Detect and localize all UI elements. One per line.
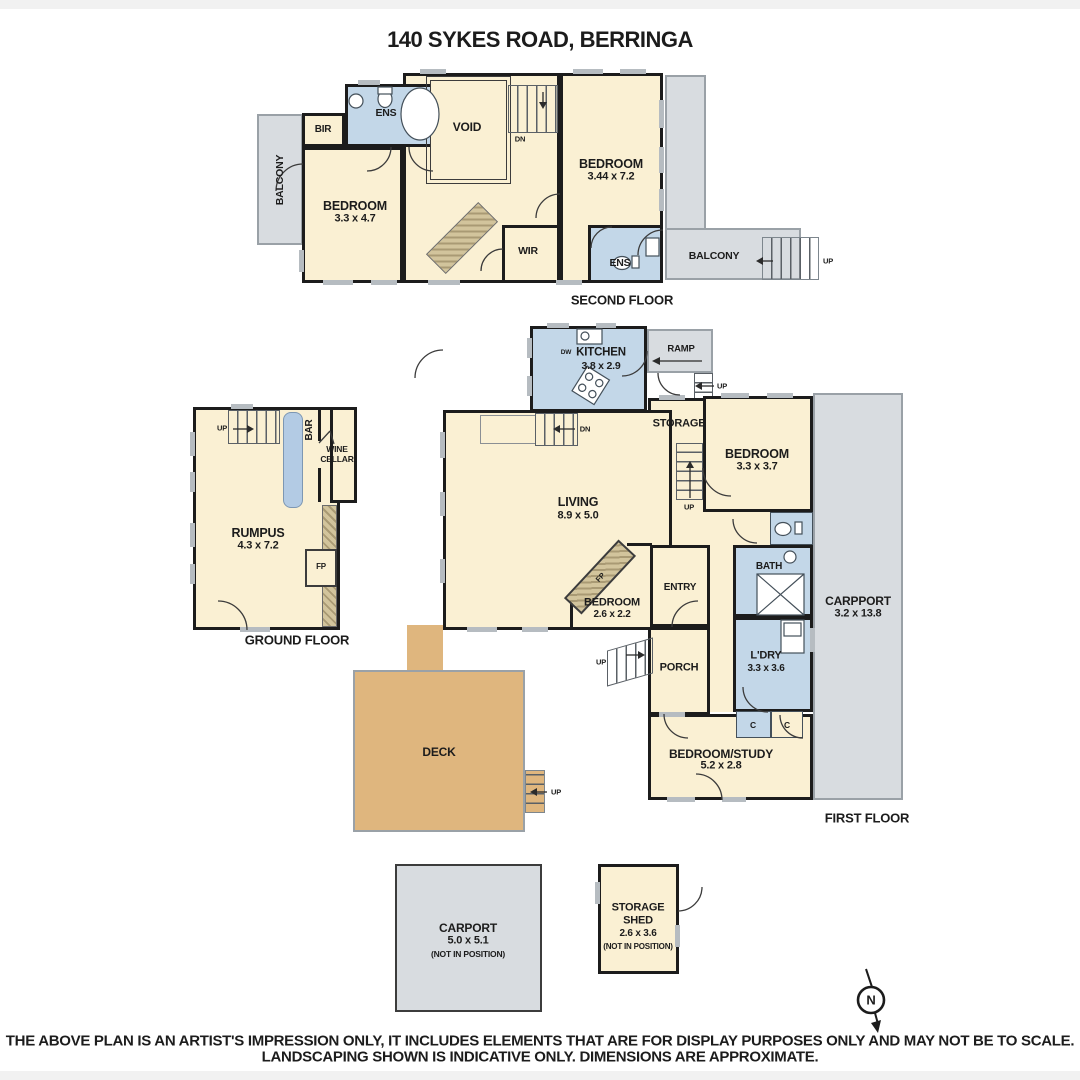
window-marker	[547, 323, 569, 328]
window-marker	[659, 189, 664, 211]
label-up-porch: UP	[596, 658, 606, 666]
floor-plan-canvas: 140 SYKES ROAD, BERRINGA FP	[0, 0, 1080, 1080]
label-void: VOID	[453, 121, 482, 133]
deck-neck	[407, 625, 443, 675]
label-bedroom-top-dims: 3.3 x 3.7	[736, 462, 777, 473]
wir-wall-top	[502, 225, 560, 228]
label-carport-attached-name: CARPPORT	[825, 595, 891, 607]
label-kitchen-name: KITCHEN	[576, 347, 626, 359]
label-ens-bottom: ENS	[610, 258, 631, 269]
window-marker	[299, 250, 304, 272]
label-balcony-right: BALCONY	[689, 251, 740, 262]
label-living-name: LIVING	[558, 496, 598, 509]
label-kitchen-dims: 3.8 x 2.9	[581, 361, 620, 372]
label-carport-detached-name: CARPORT	[439, 922, 497, 934]
window-marker	[659, 712, 685, 717]
stairs-porch-up	[607, 637, 653, 686]
label-dn-living: DN	[580, 425, 590, 433]
label-cupboard-2: C	[784, 721, 790, 730]
stairs-balcony-right	[762, 237, 819, 280]
label-compass-north: N	[866, 994, 875, 1007]
window-marker	[659, 147, 664, 173]
label-wir: WIR	[518, 246, 538, 257]
label-bedroom-study-name: BEDROOM/STUDY	[669, 748, 773, 760]
label-rumpus-dims: 4.3 x 7.2	[237, 541, 278, 552]
page-title: 140 SYKES ROAD, BERRINGA	[387, 29, 693, 51]
label-ramp: RAMP	[667, 344, 694, 354]
label-bedroom-top-name: BEDROOM	[725, 448, 789, 461]
top-border-band	[0, 0, 1080, 9]
stairs-living-dn	[535, 413, 578, 446]
wine-wall-lower	[318, 468, 321, 502]
window-marker	[573, 69, 603, 74]
window-marker	[675, 925, 680, 947]
disclaimer-line-2: LANDSCAPING SHOWN IS INDICATIVE ONLY. DI…	[262, 1050, 819, 1065]
window-marker	[440, 492, 445, 516]
label-storage: STORAGE	[653, 419, 706, 430]
toilet-nook	[770, 512, 813, 545]
label-first-floor: FIRST FLOOR	[825, 812, 909, 825]
window-marker	[556, 280, 582, 285]
label-up-corridor: UP	[684, 503, 694, 511]
window-marker	[190, 472, 195, 492]
window-marker	[522, 627, 548, 632]
label-bar: BAR	[305, 419, 315, 440]
window-marker	[721, 393, 749, 398]
label-laundry-name: L'DRY	[750, 651, 781, 662]
label-ens-top: ENS	[376, 108, 397, 119]
room-balcony-right-upper	[665, 75, 706, 233]
hallway-strip	[710, 545, 735, 712]
window-marker	[595, 882, 600, 904]
label-shed-name-1: STORAGE	[612, 903, 665, 914]
window-marker	[440, 432, 445, 458]
stairs-second-dn	[508, 85, 558, 133]
window-marker	[667, 797, 695, 802]
window-marker	[659, 395, 685, 400]
label-porch: PORCH	[660, 663, 699, 674]
stairs-landing	[480, 415, 536, 444]
label-shed-dims: 2.6 x 3.6	[619, 929, 656, 939]
label-bedroom-small-dims: 2.6 x 2.2	[593, 610, 630, 620]
bottom-border-band	[0, 1071, 1080, 1080]
window-marker	[371, 280, 397, 285]
label-balcony-left: BALCONY	[275, 155, 286, 206]
window-marker	[190, 564, 195, 584]
window-marker	[659, 100, 664, 128]
label-up-deck: UP	[551, 788, 561, 796]
window-marker	[231, 404, 253, 409]
window-marker	[420, 69, 446, 74]
label-entry: ENTRY	[664, 583, 697, 593]
label-carport-attached-dims: 3.2 x 13.8	[835, 609, 882, 620]
window-marker	[323, 280, 353, 285]
label-bedroom-study-dims: 5.2 x 2.8	[700, 761, 741, 772]
label-carport-detached-note: (NOT IN POSITION)	[431, 950, 505, 959]
label-wine-cellar-1: WINE	[326, 445, 347, 454]
window-marker	[240, 627, 270, 632]
window-marker	[527, 338, 532, 358]
stairs-ground-up	[228, 410, 280, 444]
label-carport-detached-dims: 5.0 x 5.1	[447, 936, 488, 947]
label-shed-note: (NOT IN POSITION)	[603, 943, 673, 951]
label-dn-second: DN	[515, 135, 525, 143]
label-up-ramp: UP	[717, 382, 727, 390]
label-living-dims: 8.9 x 5.0	[557, 511, 598, 522]
label-bedroom-left-dims: 3.3 x 4.7	[334, 214, 375, 225]
label-dw: DW	[561, 350, 571, 357]
stairs-deck-up	[525, 770, 545, 813]
label-bedroom-right-dims: 3.44 x 7.2	[588, 172, 635, 183]
label-laundry-dims: 3.3 x 3.6	[747, 664, 784, 674]
label-deck: DECK	[422, 746, 455, 758]
label-bedroom-right-name: BEDROOM	[579, 158, 643, 171]
label-rumpus-name: RUMPUS	[232, 527, 285, 540]
label-up-balcony: UP	[823, 257, 833, 265]
fireplace-living-label: FP	[594, 571, 607, 584]
window-marker	[358, 80, 380, 85]
window-marker	[620, 69, 646, 74]
label-wine-cellar-2: CELLAR	[320, 455, 353, 464]
label-cupboard-1: C	[750, 721, 756, 730]
room-bath	[733, 545, 813, 617]
label-second-floor: SECOND FLOOR	[571, 294, 673, 307]
room-ens-bottom	[588, 225, 663, 283]
window-marker	[527, 376, 532, 396]
label-ground-floor: GROUND FLOOR	[245, 634, 349, 647]
wine-wall-upper	[318, 407, 321, 441]
window-marker	[596, 323, 616, 328]
hall-bath-nook	[703, 512, 770, 545]
window-marker	[467, 627, 497, 632]
label-bath: BATH	[756, 562, 782, 572]
window-marker	[428, 280, 460, 285]
wir-wall-left	[502, 225, 505, 283]
label-shed-name-2: SHED	[623, 916, 653, 927]
stairs-corridor-up	[676, 443, 703, 500]
label-bir: BIR	[315, 125, 332, 135]
label-bedroom-small-name: BEDROOM	[584, 598, 640, 609]
disclaimer-line-1: THE ABOVE PLAN IS AN ARTIST'S IMPRESSION…	[6, 1034, 1074, 1049]
bar-counter	[283, 412, 303, 508]
window-marker	[767, 393, 793, 398]
window-marker	[190, 523, 195, 547]
label-bedroom-left-name: BEDROOM	[323, 200, 387, 213]
window-marker	[722, 797, 746, 802]
label-up-ground: UP	[217, 424, 227, 432]
bedroom-small-wall-top	[627, 543, 652, 546]
window-marker	[810, 628, 815, 652]
label-fp-ground: FP	[316, 563, 326, 571]
window-marker	[190, 432, 195, 456]
window-marker	[440, 559, 445, 583]
